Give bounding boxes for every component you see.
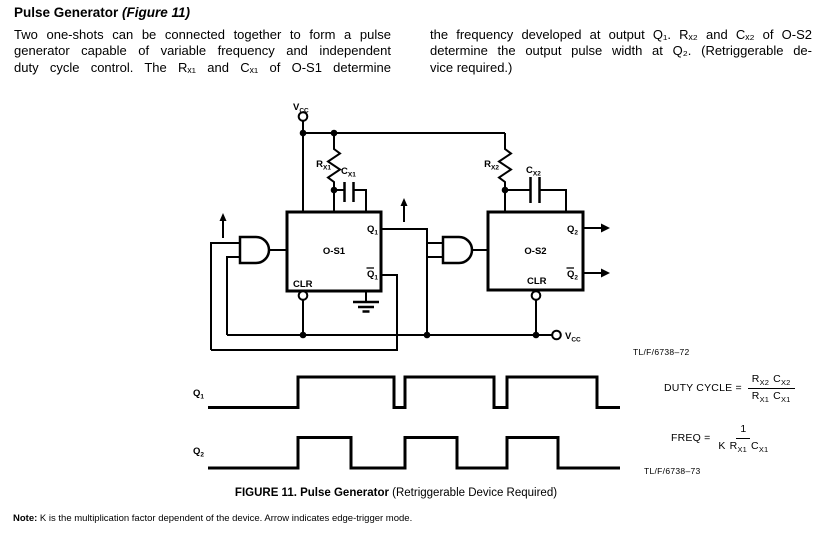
edge-trigger-arrow-1 <box>220 213 227 238</box>
one-shot-os1-block: O-S1 Q1 Q1 CLR <box>287 212 381 291</box>
footnote-text: K is the multiplication factor dependent… <box>37 513 412 524</box>
waveform-q2-label: Q2 <box>193 446 204 459</box>
vcc-terminal-top: VCC <box>293 102 309 133</box>
figure-ref-number-top: TL/F/6738–72 <box>633 347 690 357</box>
footnote: Note: K is the multiplication factor dep… <box>13 513 412 524</box>
and-gate-1 <box>211 237 288 350</box>
os1-label: O-S1 <box>323 246 346 257</box>
waveform-q2-trace <box>208 438 620 469</box>
capacitor-cx2: CX2 <box>505 165 566 212</box>
waveform-q1-trace <box>208 377 620 408</box>
os1-clr-label: CLR <box>293 279 313 290</box>
capacitor-cx1: CX1 <box>334 166 366 212</box>
frequency-fraction: 1 KRX1CX1 <box>716 424 770 452</box>
one-shot-os2-block: O-S2 Q2 Q2 CLR <box>488 212 583 290</box>
cx1-label: CX1 <box>341 166 356 179</box>
duty-cycle-formula-label: DUTY CYCLE = <box>664 382 742 394</box>
frequency-formula-label: FREQ = <box>671 432 710 444</box>
vcc-bottom-label: VCC <box>565 331 581 344</box>
os2-clr-label: CLR <box>527 276 547 287</box>
vcc-top-label: VCC <box>293 102 309 115</box>
and-gate-2 <box>443 237 488 263</box>
figure-ref-number-bottom: TL/F/6738–73 <box>644 466 701 476</box>
duty-cycle-formula: DUTY CYCLE = RX2CX2 RX1CX1 <box>664 374 795 402</box>
footnote-label: Note: <box>13 513 37 524</box>
resistor-rx1: RX1 <box>316 133 340 212</box>
resistor-rx2: RX2 <box>484 133 511 212</box>
frequency-formula: FREQ = 1 KRX1CX1 <box>671 424 770 452</box>
edge-trigger-arrow-2 <box>401 198 408 222</box>
timing-waveforms: Q1 Q2 <box>193 377 620 468</box>
q2-output-arrow <box>583 224 610 233</box>
figure-11-diagram: VCC RX1 CX1 RX2 CX2 O-S1 Q1 Q1 CLR <box>0 0 822 538</box>
figure-caption-regular: (Retriggerable Device Required) <box>389 487 557 499</box>
vcc-terminal-bottom: VCC <box>552 331 581 344</box>
os2-label: O-S2 <box>524 246 546 257</box>
waveform-q1-label: Q1 <box>193 388 204 401</box>
q1-feed-net <box>381 229 443 335</box>
figure-caption-bold: FIGURE 11. Pulse Generator <box>235 487 389 499</box>
clr-bubble-os2 <box>532 291 541 335</box>
duty-cycle-fraction: RX2CX2 RX1CX1 <box>748 374 795 402</box>
rx2-label: RX2 <box>484 159 499 172</box>
clr-bubble-os1 <box>299 291 308 335</box>
ground-symbol <box>353 291 379 312</box>
cx2-label: CX2 <box>526 165 541 178</box>
qbar2-output-arrow <box>583 269 610 278</box>
figure-caption: FIGURE 11. Pulse Generator (Retriggerabl… <box>90 487 702 499</box>
